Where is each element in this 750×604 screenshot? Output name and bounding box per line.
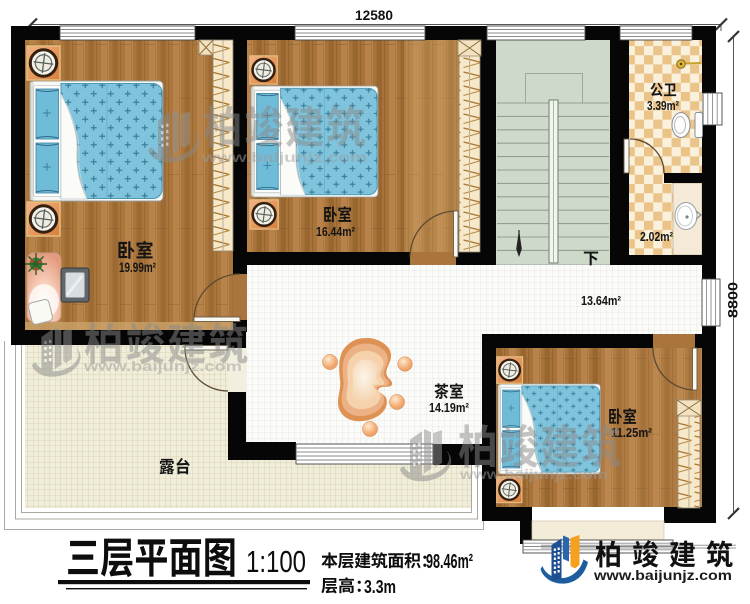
svg-text:3.3m: 3.3m <box>364 577 396 597</box>
svg-text:8800: 8800 <box>725 282 741 318</box>
svg-text:www.baijunjz.com: www.baijunjz.com <box>459 467 608 482</box>
svg-text:16.44m²: 16.44m² <box>316 224 356 239</box>
svg-text:www.baijunjz.com: www.baijunjz.com <box>201 149 367 165</box>
svg-text:19.99m²: 19.99m² <box>119 260 156 275</box>
svg-text:12580: 12580 <box>355 8 393 23</box>
svg-text:3.39m²: 3.39m² <box>647 99 679 113</box>
svg-text:www.baijunjz.com: www.baijunjz.com <box>83 358 242 374</box>
svg-text:1:100: 1:100 <box>246 544 306 579</box>
svg-text:13.64m²: 13.64m² <box>581 293 622 308</box>
svg-text:14.19m²: 14.19m² <box>429 401 469 415</box>
svg-text:98.46m²: 98.46m² <box>426 551 473 573</box>
svg-text:www.baijunjz.com: www.baijunjz.com <box>593 567 732 583</box>
svg-text:2.02m²: 2.02m² <box>640 230 673 244</box>
